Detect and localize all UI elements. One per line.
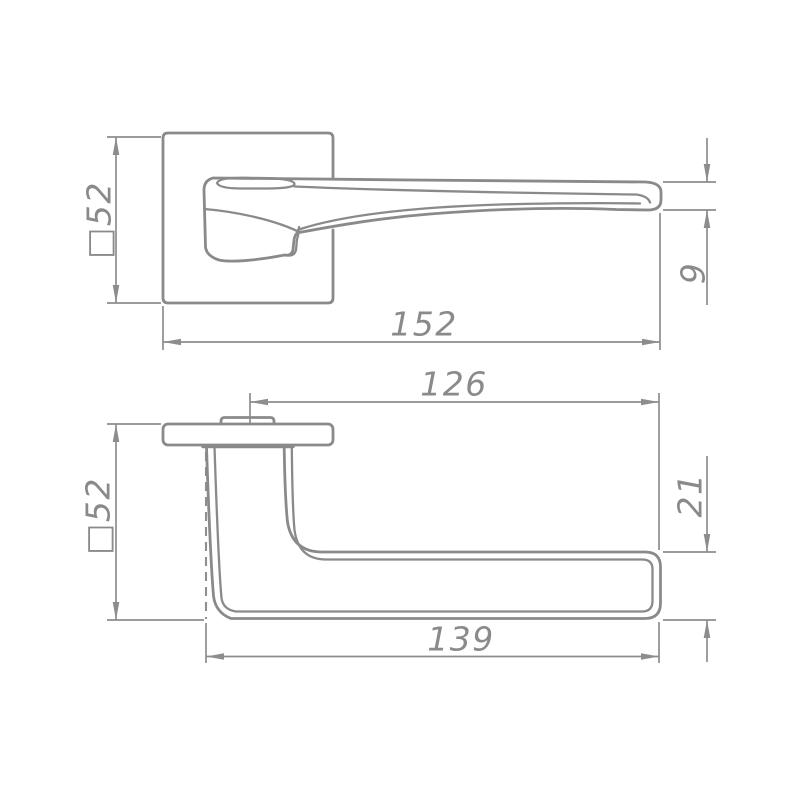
arrow-right: [641, 399, 659, 406]
arrow-right: [641, 653, 659, 660]
front-view-dimensions: □52 152 9: [80, 137, 717, 350]
arrow-down: [113, 602, 120, 620]
arrow-up: [704, 620, 711, 638]
arrow-down: [113, 285, 120, 303]
door-handle-drawing: □52 152 9 126 □52: [0, 0, 800, 800]
side-view: [163, 418, 661, 620]
dim-label-126: 126: [420, 365, 488, 404]
arrow-right: [642, 339, 660, 346]
handle-outer-contour: [207, 447, 661, 619]
dim-label-rosette-side: □52: [79, 477, 118, 555]
arrow-up: [113, 137, 120, 155]
dim-label-tip-9: 9: [674, 262, 713, 285]
arrow-left: [163, 339, 181, 346]
arrow-down: [704, 164, 711, 182]
arrow-up: [704, 210, 711, 228]
dim-label-139: 139: [427, 620, 495, 659]
dim-label-rosette-front: □52: [80, 181, 119, 259]
arrow-down: [704, 534, 711, 552]
rosette-plate: [163, 424, 333, 445]
arrow-left: [250, 399, 268, 406]
dim-label-length-152: 152: [390, 305, 458, 344]
front-view: [163, 133, 661, 303]
arrow-up: [113, 424, 120, 442]
arrow-left: [206, 653, 224, 660]
technical-drawing-page: □52 152 9 126 □52: [0, 0, 800, 800]
dim-label-21: 21: [671, 473, 710, 518]
handle-inner-contour: [215, 447, 653, 612]
